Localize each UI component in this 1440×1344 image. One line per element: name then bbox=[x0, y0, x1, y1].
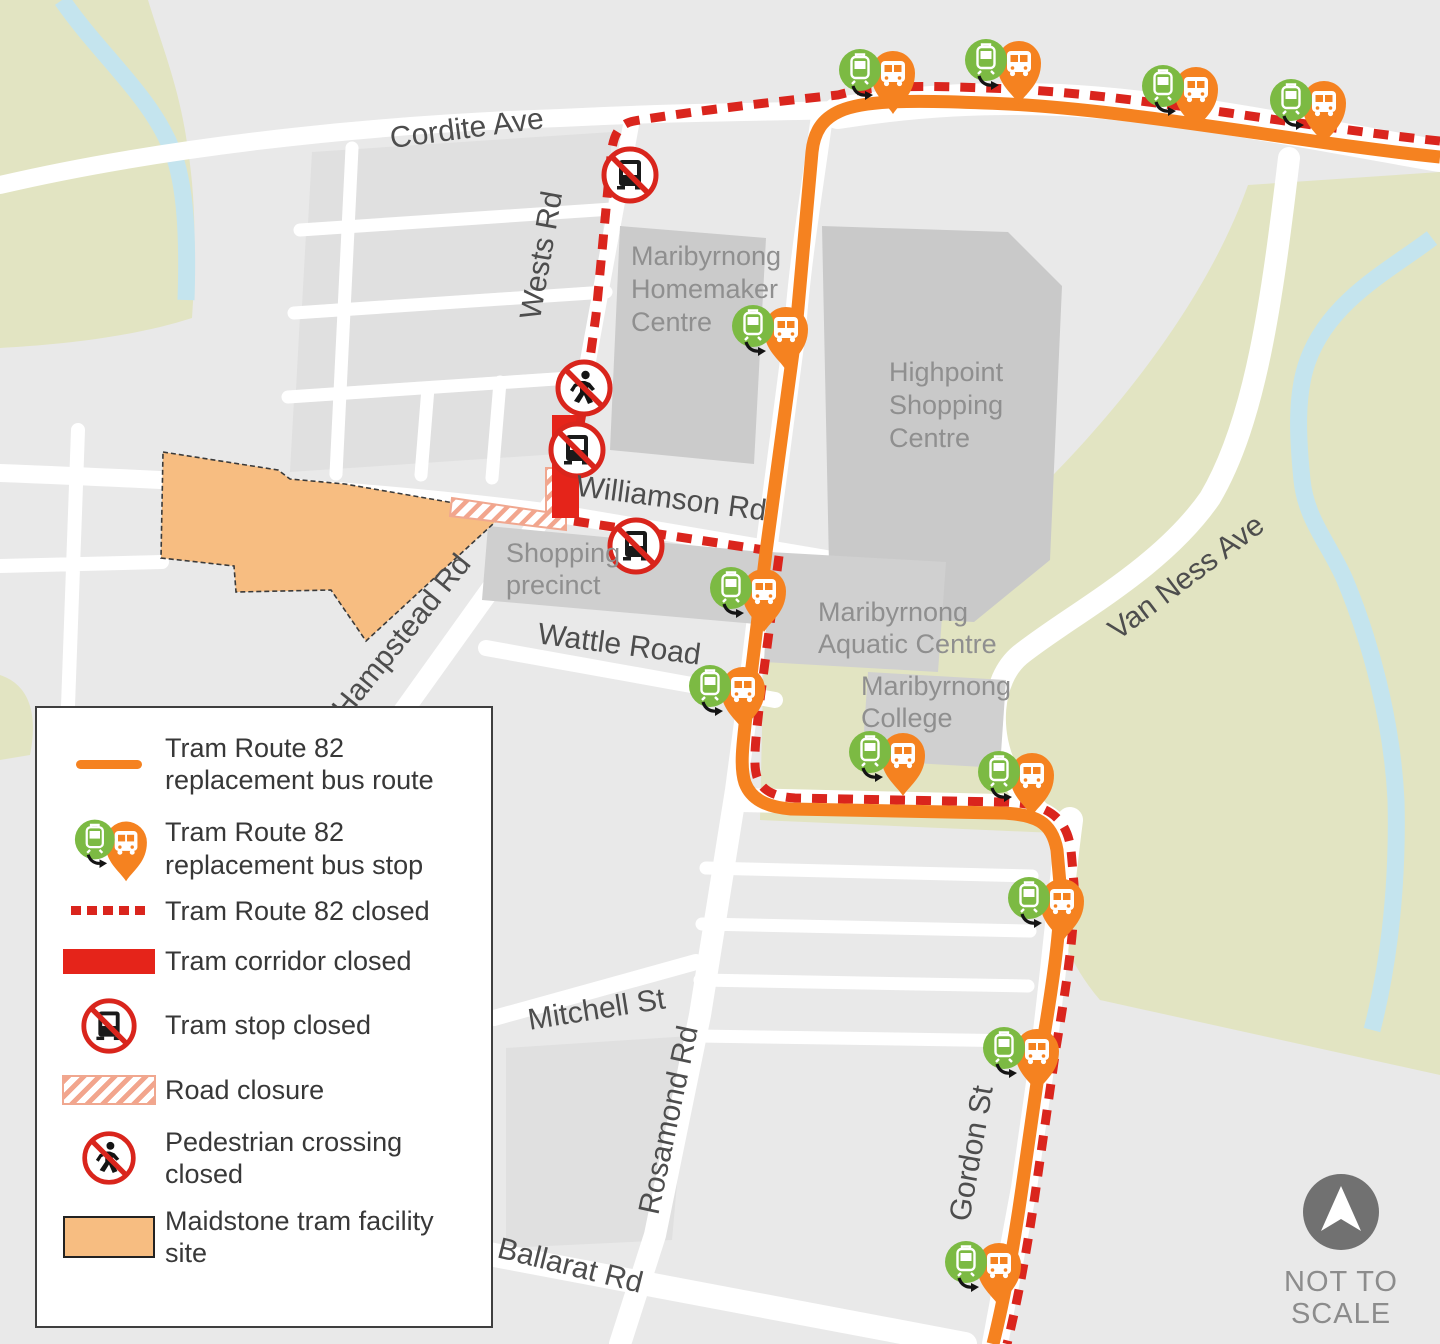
svg-text:Homemaker: Homemaker bbox=[631, 274, 778, 304]
svg-text:College: College bbox=[861, 703, 953, 733]
svg-text:precinct: precinct bbox=[506, 570, 601, 600]
tram-stop-closed-icon bbox=[604, 149, 656, 201]
legend-item-corridor-closed: Tram corridor closed bbox=[53, 945, 475, 977]
legend: Tram Route 82 replacement bus route Tram… bbox=[35, 706, 493, 1328]
svg-text:Shopping: Shopping bbox=[889, 390, 1003, 420]
legend-label: Maidstone tram facility site bbox=[165, 1205, 475, 1270]
legend-label: Tram Route 82 replacement bus stop bbox=[165, 816, 475, 881]
map-screenshot: Cordite Ave Wests Rd Williamson Rd Hamps… bbox=[0, 0, 1440, 1344]
road-closure-swatch bbox=[62, 1075, 156, 1105]
svg-text:Maribyrnong: Maribyrnong bbox=[818, 597, 968, 627]
legend-item-bus-stop: Tram Route 82 replacement bus stop bbox=[53, 813, 475, 885]
legend-item-road-closure: Road closure bbox=[53, 1074, 475, 1106]
legend-item-bus-route: Tram Route 82 replacement bus route bbox=[53, 732, 475, 797]
pedestrian-crossing-closed-icon bbox=[80, 1129, 138, 1187]
bus-route-line-swatch bbox=[76, 760, 142, 769]
svg-text:Aquatic Centre: Aquatic Centre bbox=[818, 629, 997, 659]
legend-item-facility-site: Maidstone tram facility site bbox=[53, 1205, 475, 1270]
tram-stop-closed-icon bbox=[551, 424, 603, 476]
svg-text:Maribyrnong: Maribyrnong bbox=[631, 241, 781, 271]
svg-text:Shopping: Shopping bbox=[506, 538, 620, 568]
replacement-bus-stop-icon bbox=[68, 813, 150, 885]
scale-note-line1: NOT TO bbox=[1284, 1266, 1398, 1298]
facility-site-swatch bbox=[63, 1216, 155, 1258]
legend-label: Pedestrian crossing closed bbox=[165, 1126, 475, 1191]
legend-label: Tram Route 82 closed bbox=[165, 895, 430, 927]
tram-stop-closed-icon bbox=[79, 996, 139, 1056]
legend-label: Tram stop closed bbox=[165, 1009, 371, 1041]
legend-item-route-closed: Tram Route 82 closed bbox=[53, 895, 475, 927]
svg-text:Highpoint: Highpoint bbox=[889, 357, 1004, 387]
route-closed-dash-swatch bbox=[71, 906, 147, 915]
legend-item-ped-crossing-closed: Pedestrian crossing closed bbox=[53, 1126, 475, 1191]
legend-label: Tram Route 82 replacement bus route bbox=[165, 732, 475, 797]
svg-text:Centre: Centre bbox=[889, 423, 970, 453]
scale-note-line2: SCALE bbox=[1291, 1298, 1391, 1330]
legend-item-stop-closed: Tram stop closed bbox=[53, 996, 475, 1056]
svg-text:Centre: Centre bbox=[631, 307, 712, 337]
svg-text:Maribyrnong: Maribyrnong bbox=[861, 671, 1011, 701]
legend-label: Tram corridor closed bbox=[165, 945, 412, 977]
corridor-closed-swatch bbox=[63, 949, 155, 974]
pedestrian-crossing-closed-icon bbox=[558, 362, 610, 414]
legend-label: Road closure bbox=[165, 1074, 324, 1106]
